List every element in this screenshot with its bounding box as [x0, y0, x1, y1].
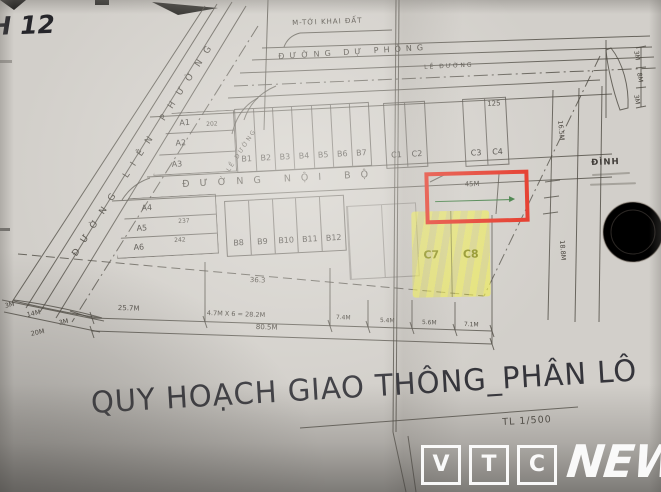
red-highlight-box: 45M [424, 170, 529, 225]
green-arrow-tip [509, 196, 515, 202]
vtc-news-logo: V T C NEWS [421, 437, 661, 492]
title-underline [0, 0, 661, 492]
green-dimension-line [435, 199, 511, 202]
photographed-planning-map: A1 A2 A3 B1 B2 B3 B4 B5 B6 B7 C1 C2 C3 C… [0, 0, 661, 492]
red-box-dimension: 45M [465, 180, 480, 188]
logo-word: NEWS [564, 435, 661, 488]
logo-letter-box: C [517, 445, 557, 485]
logo-letter-box: V [421, 445, 461, 485]
logo-letter-box: T [469, 445, 509, 485]
